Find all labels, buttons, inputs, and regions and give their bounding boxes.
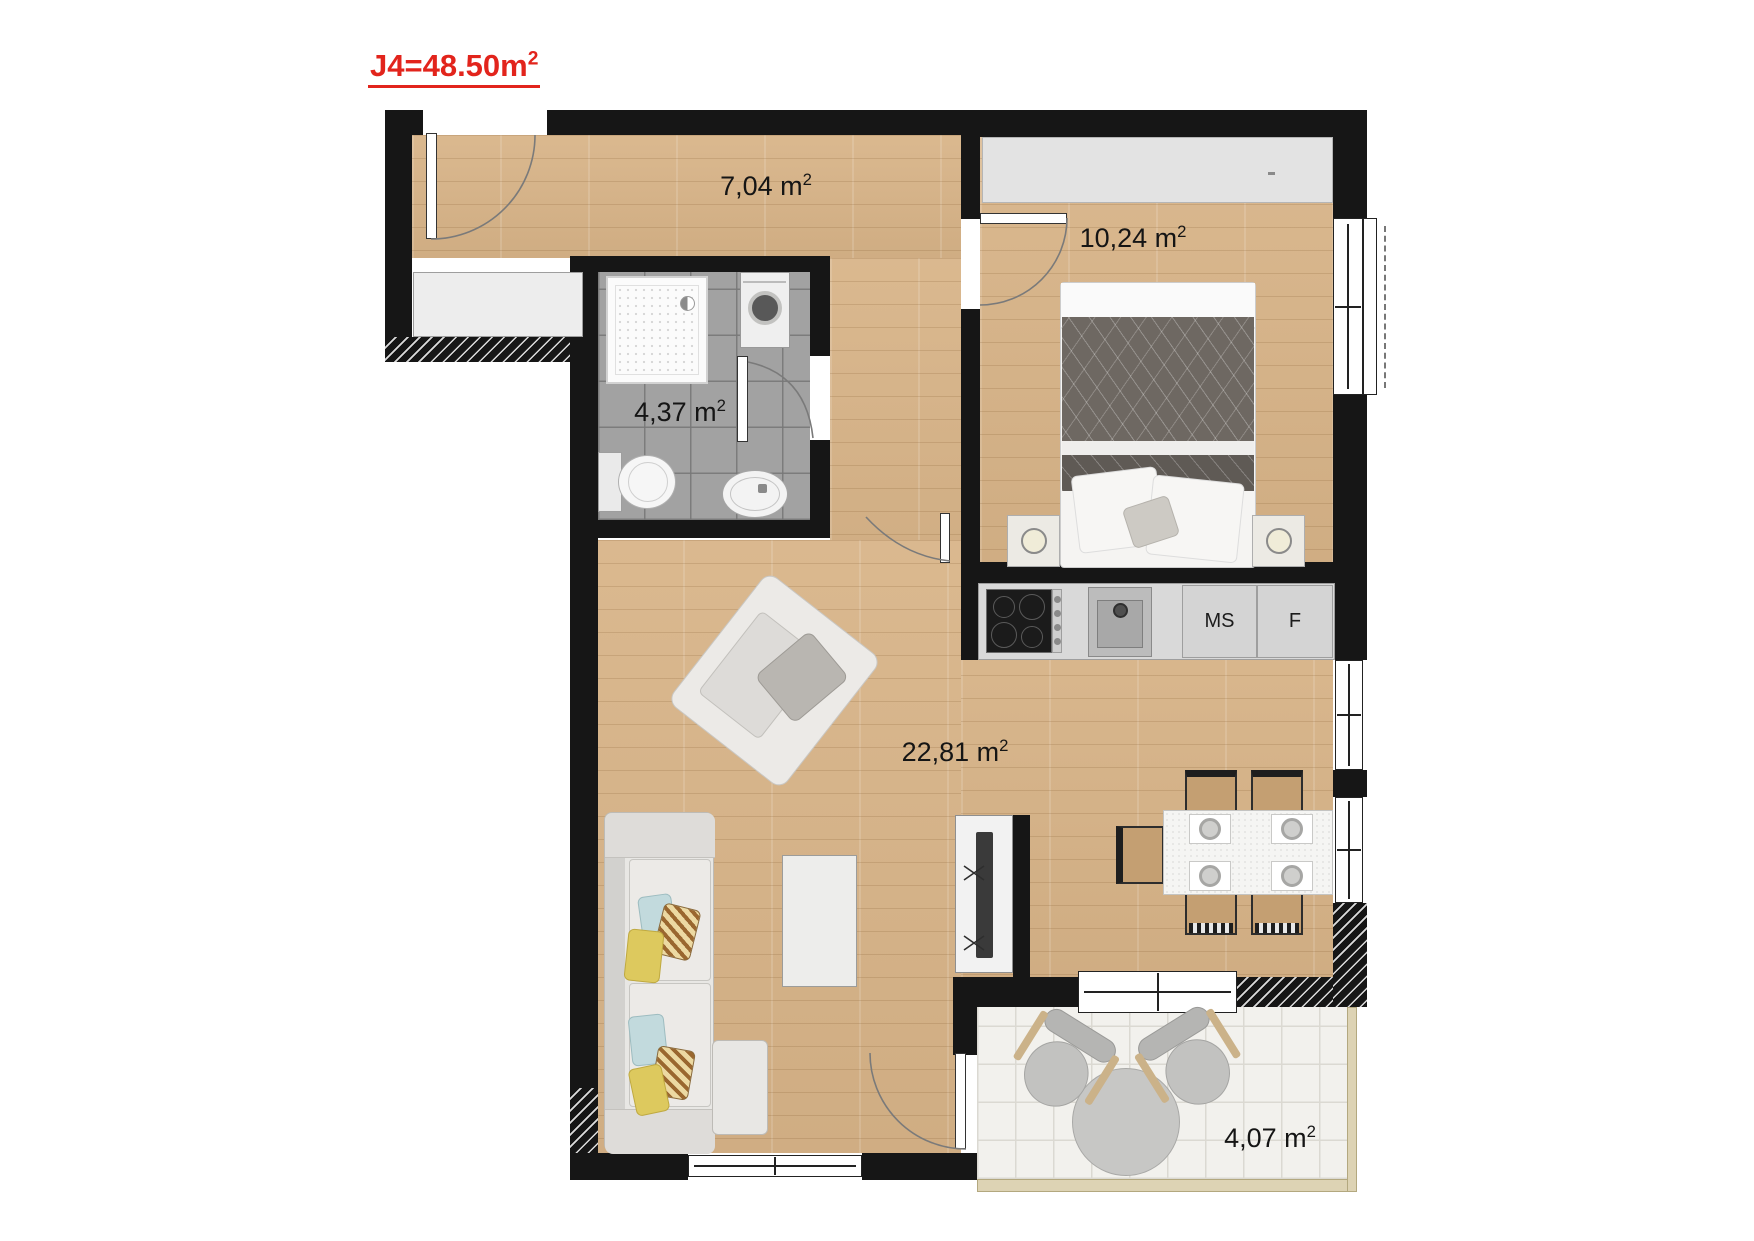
hallway-area-label: 7,04 m2 [686,170,846,202]
plan-title: J4=48.50m2 [368,48,540,88]
bedroom-area-label: 10,24 m2 [1053,222,1213,254]
tv-legs [964,866,984,950]
corridor-door-arc [866,517,950,561]
floor-plan: MS F [0,0,1754,1241]
living-area-label: 22,81 m2 [875,736,1035,768]
balcony-door-arc [870,1053,966,1149]
balcony-area-label: 4,07 m2 [1190,1122,1350,1154]
bathroom-area-label: 4,37 m2 [600,396,760,428]
door-arc-overlay [0,0,1754,1241]
entry-door-arc [431,135,535,239]
